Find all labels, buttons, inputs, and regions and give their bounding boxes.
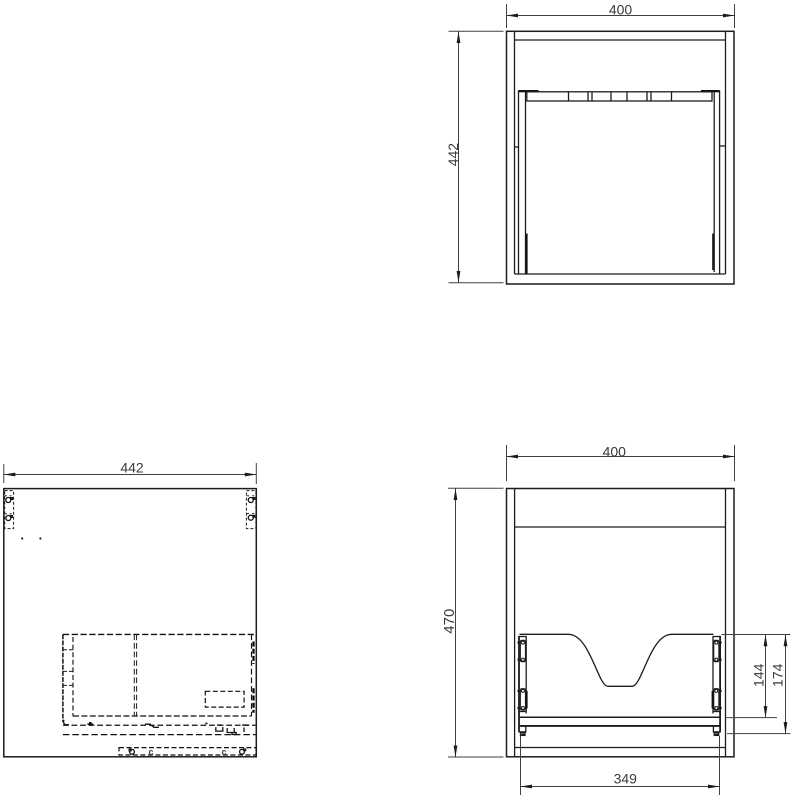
svg-text:470: 470 (441, 609, 458, 634)
svg-text:400: 400 (603, 443, 627, 459)
svg-text:442: 442 (120, 459, 144, 475)
svg-text:400: 400 (609, 2, 633, 18)
svg-text:442: 442 (445, 143, 461, 167)
svg-text:174: 174 (769, 663, 785, 687)
svg-text:c: c (148, 747, 153, 757)
svg-text:349: 349 (614, 771, 638, 787)
svg-text:144: 144 (751, 663, 767, 687)
svg-text:c: c (221, 747, 226, 757)
